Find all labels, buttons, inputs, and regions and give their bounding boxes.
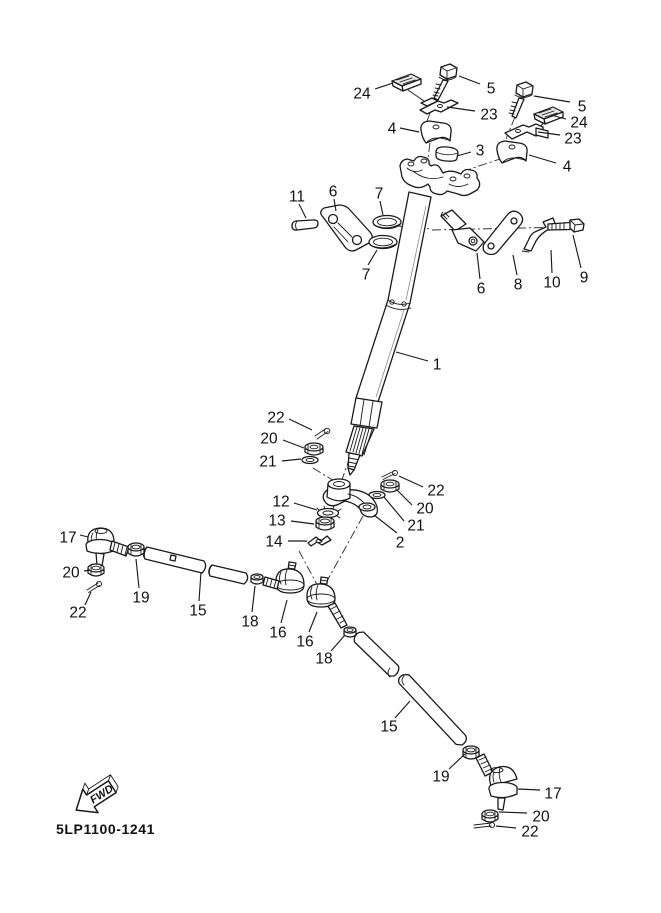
ball-joint-left [86,528,129,566]
cotter-pin-bottom-left [87,581,102,592]
callout-label-20: 20 [260,431,278,448]
callout-label-4: 4 [563,159,572,176]
callout-leader-22 [85,592,91,605]
handlebar-clamp-left [421,121,451,143]
callout-label-13: 13 [268,513,285,530]
callout-label-22: 22 [69,605,86,622]
handlebar-bolt-left [433,64,457,100]
callout-leader-22 [399,476,423,487]
bushing-pin [292,220,318,230]
callout-label-2: 2 [396,535,405,552]
oring-lower [369,236,397,249]
castle-nut-mid-right [381,480,399,492]
callout-label-22: 22 [521,824,538,841]
clamp-washer-right [505,124,548,139]
callout-leader-9 [573,235,581,268]
callout-label-4: 4 [388,121,397,138]
callouts: 2452345242334116776810912220212220211213… [59,76,588,841]
cotter-pin-mid-left [315,428,330,439]
callout-leader-1 [396,352,428,361]
callout-label-16: 16 [269,625,286,642]
callout-label-24: 24 [570,115,588,132]
callout-label-7: 7 [362,267,371,284]
callout-label-18: 18 [315,651,332,668]
callout-leader-21 [282,459,301,461]
callout-label-15: 15 [189,603,206,620]
steering-yoke [400,157,480,196]
callout-label-7: 7 [375,186,384,203]
callout-leader-16 [309,612,317,632]
part-code: 5LP1100-1241 [56,821,155,837]
callout-leader-19 [136,559,139,588]
callout-label-17: 17 [544,786,561,803]
castle-nut-bottom-right [482,810,498,822]
cotter-pin-bottom-right [474,822,495,828]
damper-bracket-left [321,205,373,251]
callout-leader-15 [395,701,410,718]
fwd-arrow: FWD [66,769,124,822]
callout-label-20: 20 [416,501,434,518]
callout-leader-17 [518,789,540,790]
shaft-hex-end [351,398,382,428]
callout-label-22: 22 [427,483,444,500]
link-plate [483,211,522,254]
callout-leader-11 [299,204,306,218]
shaft-splines [346,426,374,475]
handlebar-clamp-right [497,141,527,163]
callout-label-6: 6 [329,184,338,201]
callout-leader-4 [400,128,419,132]
callout-label-16: 16 [296,634,313,651]
callout-label-23: 23 [564,131,581,148]
cotter-pin-mid-right [382,471,398,480]
castle-nut-bottom-left [88,564,104,576]
callout-leader-23 [447,107,475,111]
callout-leader-22 [496,826,516,828]
oring-upper [373,216,401,229]
hook-lever [522,218,556,252]
callout-leader-17 [80,535,88,537]
callout-leader-20 [499,812,527,813]
callout-label-18: 18 [241,614,258,631]
callout-leader-7 [368,250,377,265]
callout-leader-15 [199,572,201,601]
callout-leader-10 [551,250,552,273]
castle-nut-mid-left [305,443,323,455]
callout-label-17: 17 [59,530,76,547]
handlebar-pad-left [392,74,424,101]
callout-label-9: 9 [580,270,589,287]
callout-leader-3 [457,152,471,156]
callout-label-15: 15 [380,719,397,736]
callout-label-6: 6 [477,281,486,298]
callout-label-21: 21 [407,518,424,535]
ball-joint-right [476,754,517,810]
callout-leader-18 [331,635,345,651]
callout-leader-8 [513,255,517,275]
jam-nut-18-left [251,574,263,584]
callout-leader-21 [384,497,404,521]
callout-leader-24 [375,83,393,89]
washer-mid-left [302,457,318,464]
callout-leader-5 [459,76,480,84]
callout-label-21: 21 [259,454,276,471]
jam-nut-18-right [344,627,356,637]
parts-diagram-page: FWD 5LP1100-1241 24523452423341167768109… [0,0,661,913]
handlebar-bolt-right [509,82,533,118]
steering-stem-cap [436,147,458,161]
callout-label-1: 1 [433,357,442,374]
callout-leader-18 [252,586,255,612]
clamp-washer-left [420,98,458,114]
tab-washer-14 [308,536,331,546]
callout-label-5: 5 [578,99,587,116]
tie-rod-right [354,632,466,745]
tie-rod-end-inner-left [263,562,304,593]
callout-label-3: 3 [476,143,485,160]
callout-label-20: 20 [62,565,80,582]
callout-label-11: 11 [289,189,305,206]
callout-label-14: 14 [265,534,283,551]
jam-nut-19-left [128,543,144,556]
tie-rod-end-inner-right [307,577,347,628]
callout-label-12: 12 [272,494,289,511]
tie-rod-left [143,547,247,584]
callout-leader-13 [291,521,314,524]
callout-leader-22 [289,419,312,430]
callout-label-23: 23 [480,107,497,124]
callout-label-8: 8 [514,277,523,294]
callout-leader-20 [283,440,304,448]
callout-leader-6 [477,253,480,279]
callout-leader-4 [529,155,556,163]
nut-13 [316,517,334,530]
callout-label-22: 22 [267,410,284,427]
callout-leader-5 [534,96,570,102]
callout-label-19: 19 [432,769,449,786]
damper-bracket-right [441,210,484,251]
steering-exploded-diagram: FWD 5LP1100-1241 24523452423341167768109… [0,0,661,913]
callout-label-10: 10 [543,275,561,292]
callout-leader-16 [281,600,287,623]
callout-leader-2 [374,515,397,533]
callout-label-19: 19 [132,590,149,607]
callout-label-5: 5 [487,81,496,98]
callout-leader-12 [294,503,317,510]
callout-label-24: 24 [353,86,371,103]
callout-leader-20 [397,490,412,505]
callout-leader-19 [449,754,465,769]
callout-leader-7 [380,201,383,215]
